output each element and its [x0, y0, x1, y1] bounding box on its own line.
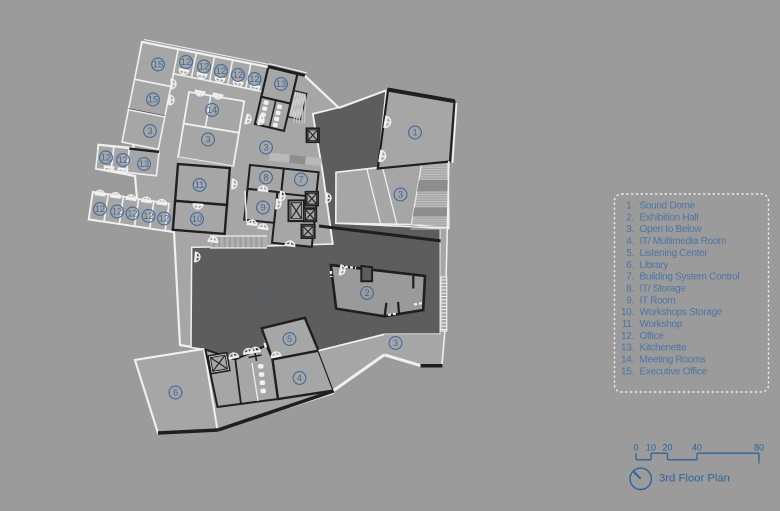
- svg-text:2: 2: [364, 288, 369, 298]
- svg-text:12.: 12.: [621, 331, 634, 342]
- svg-text:10.: 10.: [621, 307, 634, 318]
- svg-text:Library: Library: [640, 260, 669, 271]
- svg-text:12: 12: [233, 70, 243, 80]
- svg-text:15.: 15.: [621, 366, 634, 377]
- svg-text:14.: 14.: [621, 355, 634, 366]
- svg-text:3: 3: [393, 338, 398, 348]
- svg-text:13.: 13.: [621, 343, 634, 354]
- svg-text:12: 12: [249, 74, 259, 84]
- svg-text:10: 10: [646, 443, 656, 453]
- svg-text:80: 80: [754, 443, 764, 453]
- svg-text:IT Room: IT Room: [640, 295, 676, 306]
- svg-text:40: 40: [692, 443, 702, 453]
- svg-text:3rd Floor Plan: 3rd Floor Plan: [659, 473, 730, 485]
- svg-text:13: 13: [276, 79, 286, 89]
- svg-text:2: 2: [259, 287, 264, 297]
- svg-text:10: 10: [192, 214, 202, 224]
- svg-text:Workshop: Workshop: [640, 319, 683, 330]
- svg-text:Listening Center: Listening Center: [640, 248, 709, 259]
- svg-text:Exhibition Hall: Exhibition Hall: [640, 212, 699, 223]
- svg-text:12: 12: [143, 211, 153, 221]
- svg-text:15: 15: [148, 95, 158, 105]
- svg-text:9.: 9.: [626, 295, 634, 306]
- svg-text:13: 13: [139, 159, 149, 169]
- svg-text:Executive Office: Executive Office: [640, 366, 708, 377]
- svg-text:12: 12: [216, 66, 226, 76]
- svg-text:Kitchenette: Kitchenette: [640, 343, 687, 354]
- svg-text:IT/ Storage: IT/ Storage: [640, 283, 687, 294]
- svg-text:7: 7: [298, 175, 303, 185]
- svg-text:3: 3: [398, 190, 403, 200]
- svg-text:12: 12: [112, 207, 122, 217]
- svg-text:5.: 5.: [626, 248, 634, 259]
- svg-text:11.: 11.: [622, 319, 634, 330]
- svg-text:8: 8: [263, 173, 268, 183]
- svg-text:4: 4: [297, 373, 302, 383]
- svg-text:Workshops Storage: Workshops Storage: [640, 307, 723, 318]
- svg-text:Office: Office: [640, 331, 665, 342]
- svg-text:Meeting Rooms: Meeting Rooms: [640, 355, 706, 366]
- svg-text:Sound Dome: Sound Dome: [640, 201, 696, 212]
- svg-text:1: 1: [412, 128, 417, 138]
- svg-text:4.: 4.: [626, 236, 634, 247]
- svg-text:3: 3: [147, 126, 152, 136]
- svg-text:3.: 3.: [626, 224, 634, 235]
- svg-text:2.: 2.: [626, 212, 634, 223]
- svg-text:3: 3: [205, 135, 210, 145]
- svg-text:12: 12: [95, 204, 105, 214]
- svg-text:3: 3: [263, 143, 268, 153]
- svg-text:6: 6: [173, 388, 178, 398]
- svg-text:12: 12: [181, 57, 191, 67]
- svg-text:IT/ Multimedia Room: IT/ Multimedia Room: [640, 236, 727, 247]
- svg-text:11: 11: [195, 180, 205, 190]
- svg-text:12: 12: [118, 155, 128, 165]
- svg-text:12: 12: [101, 153, 111, 163]
- svg-text:12: 12: [199, 62, 209, 72]
- svg-text:7.: 7.: [626, 272, 634, 283]
- svg-text:6.: 6.: [626, 260, 634, 271]
- svg-text:8.: 8.: [626, 283, 634, 294]
- svg-text:0: 0: [633, 443, 638, 453]
- svg-text:5: 5: [287, 334, 292, 344]
- svg-text:15: 15: [153, 60, 163, 70]
- svg-text:Building System Control: Building System Control: [640, 272, 740, 283]
- svg-text:20: 20: [662, 443, 672, 453]
- svg-text:12: 12: [127, 209, 137, 219]
- svg-text:14: 14: [207, 105, 217, 115]
- svg-text:1.: 1.: [626, 201, 634, 212]
- svg-text:Open to Below: Open to Below: [640, 224, 703, 235]
- svg-text:12: 12: [159, 214, 169, 224]
- svg-text:9: 9: [260, 203, 265, 213]
- svg-text:2: 2: [346, 138, 351, 148]
